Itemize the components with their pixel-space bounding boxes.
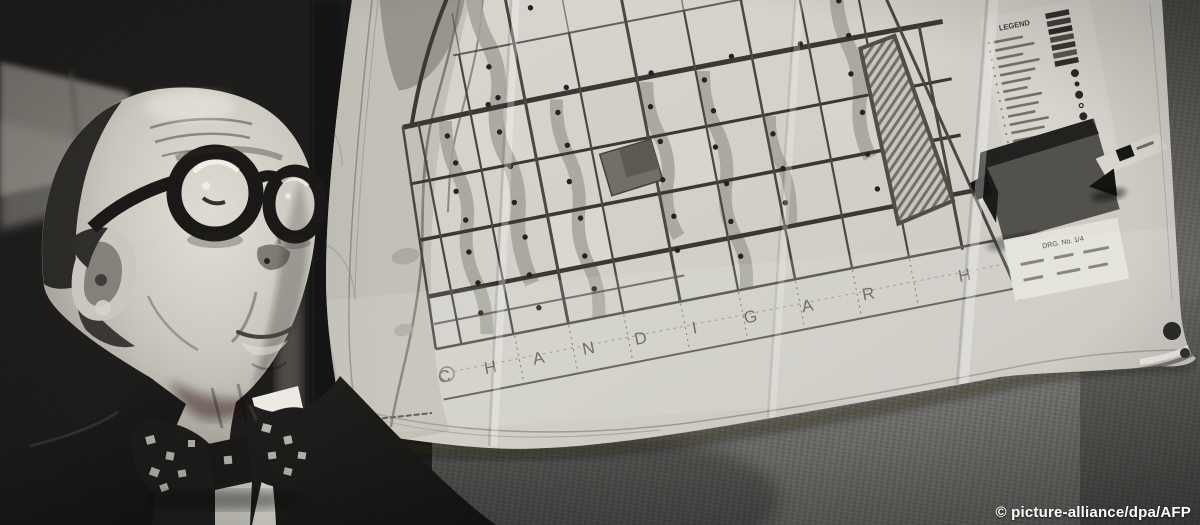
photo-canvas: C H A N D I G A R H LEGEND: [0, 0, 1200, 525]
photograph-le-corbusier-chandigarh-plan: C H A N D I G A R H LEGEND: [0, 0, 1200, 525]
credit-watermark: © picture-alliance/dpa/AFP: [996, 504, 1191, 521]
film-grain: [0, 0, 1200, 525]
